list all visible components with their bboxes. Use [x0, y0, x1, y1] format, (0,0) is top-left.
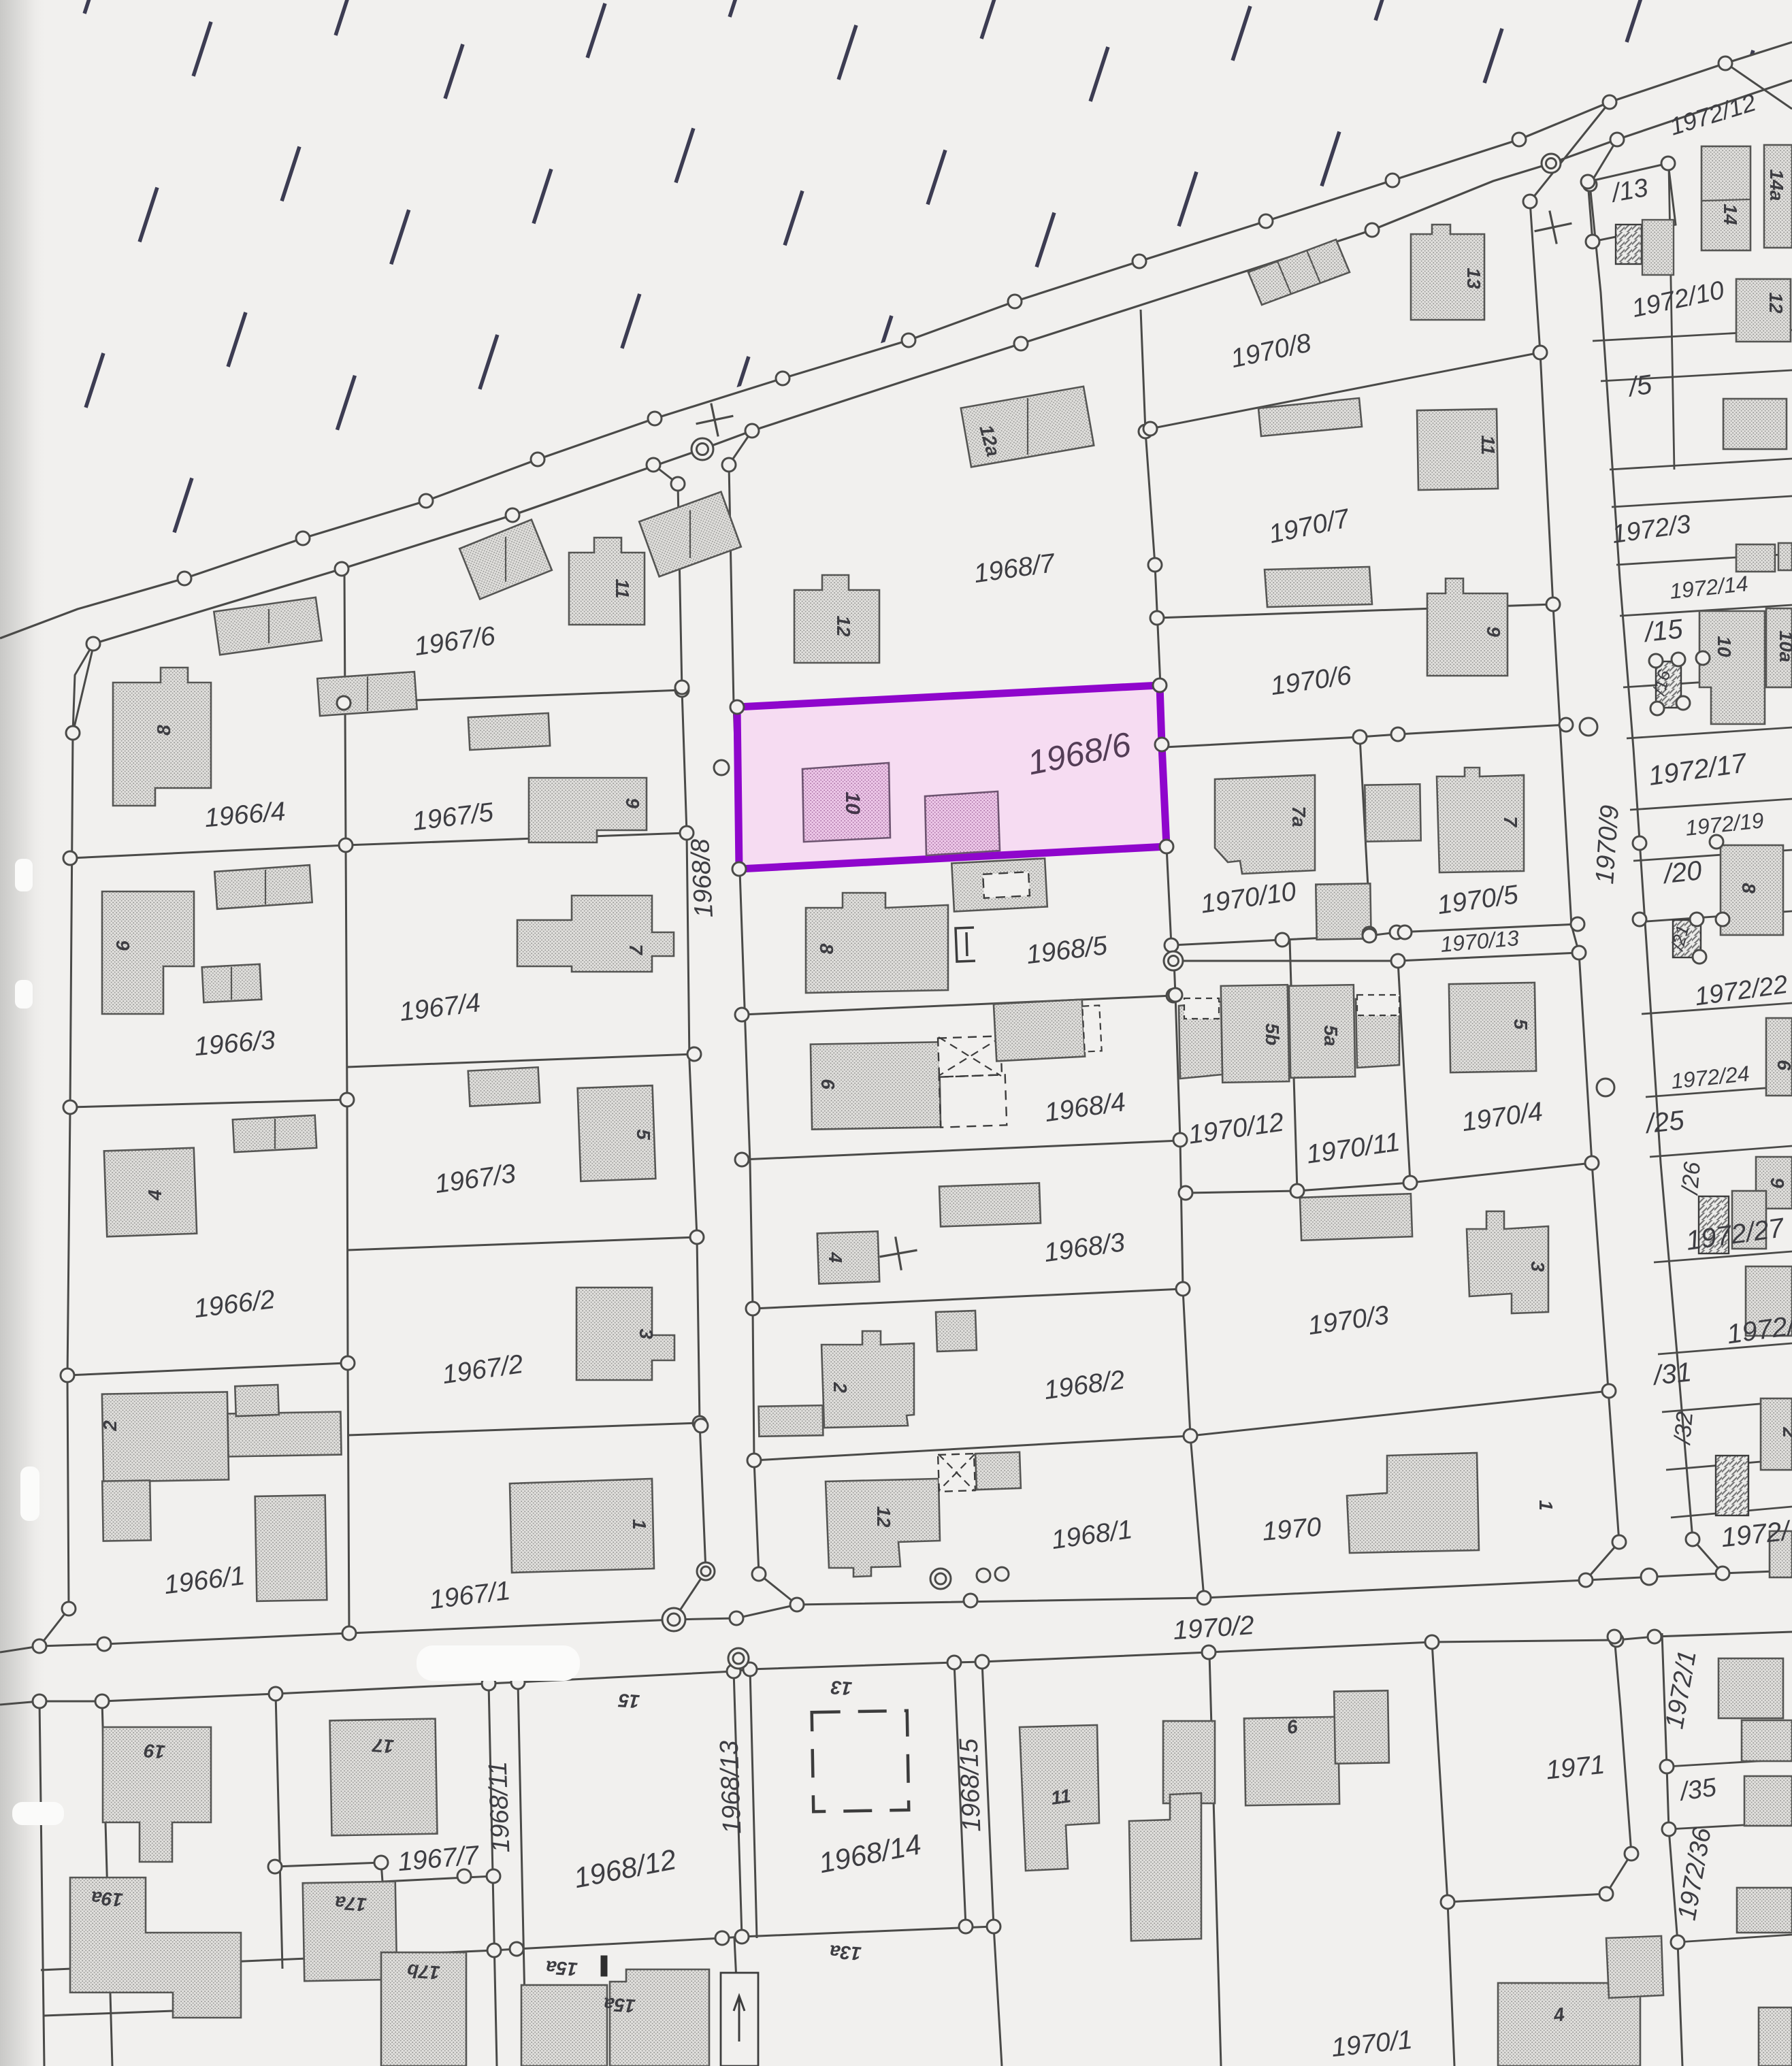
svg-text:/25: /25 — [1643, 1105, 1687, 1139]
svg-text:8: 8 — [1738, 883, 1759, 893]
svg-text:6: 6 — [112, 940, 133, 951]
svg-text:17b: 17b — [406, 1960, 440, 1983]
svg-text:8: 8 — [153, 725, 174, 736]
svg-text:19: 19 — [143, 1740, 166, 1762]
svg-text:1: 1 — [1535, 1500, 1557, 1511]
svg-text:10a: 10a — [1776, 631, 1792, 663]
svg-text:1968/11: 1968/11 — [484, 1760, 516, 1853]
svg-text:3: 3 — [636, 1328, 657, 1339]
svg-text:1970/2: 1970/2 — [1172, 1611, 1255, 1645]
svg-text:14: 14 — [1720, 203, 1741, 225]
svg-text:1971: 1971 — [1544, 1750, 1606, 1786]
svg-text:10: 10 — [1714, 636, 1735, 657]
svg-text:19a: 19a — [91, 1887, 124, 1910]
svg-text:2: 2 — [99, 1420, 120, 1432]
svg-text:15a: 15a — [603, 1993, 636, 2016]
svg-text:4: 4 — [825, 1251, 846, 1263]
svg-text:/35: /35 — [1676, 1773, 1718, 1807]
svg-text:11: 11 — [1478, 435, 1499, 455]
svg-text:9: 9 — [622, 798, 643, 808]
svg-text:1970/9: 1970/9 — [1591, 804, 1625, 885]
svg-text:10: 10 — [841, 791, 864, 815]
svg-text:12: 12 — [833, 615, 854, 637]
svg-text:11: 11 — [612, 578, 633, 598]
svg-text:1: 1 — [629, 1519, 650, 1530]
svg-text:17a: 17a — [334, 1892, 368, 1915]
svg-text:2: 2 — [1779, 1426, 1792, 1438]
svg-text:6: 6 — [817, 1079, 838, 1089]
svg-text:7: 7 — [1500, 816, 1521, 827]
svg-text:2: 2 — [830, 1381, 851, 1393]
svg-text:7a: 7a — [1288, 806, 1309, 827]
svg-text:9: 9 — [1767, 1177, 1788, 1188]
svg-text:7: 7 — [625, 944, 647, 955]
svg-text:5a: 5a — [1320, 1025, 1341, 1046]
svg-text:13a: 13a — [829, 1941, 862, 1964]
svg-text:/26: /26 — [1677, 1161, 1706, 1196]
svg-text:14a: 14a — [1766, 169, 1787, 201]
svg-text:5: 5 — [1510, 1019, 1531, 1030]
svg-text:1968/13: 1968/13 — [715, 1740, 747, 1835]
svg-text:13: 13 — [1463, 267, 1484, 289]
svg-text:17: 17 — [371, 1735, 395, 1757]
svg-text:11: 11 — [1049, 1785, 1072, 1809]
svg-text:3: 3 — [1527, 1261, 1548, 1272]
svg-text:4: 4 — [144, 1190, 165, 1201]
svg-text:12: 12 — [873, 1506, 894, 1528]
svg-text:/20: /20 — [1661, 855, 1704, 889]
svg-text:/31: /31 — [1650, 1357, 1693, 1391]
svg-text:15: 15 — [617, 1690, 640, 1712]
svg-text:8: 8 — [816, 943, 837, 954]
svg-text:5b: 5b — [1262, 1023, 1283, 1046]
svg-text:12: 12 — [1765, 292, 1787, 314]
svg-text:/15: /15 — [1642, 614, 1685, 648]
svg-text:1970: 1970 — [1261, 1512, 1322, 1546]
svg-text:5: 5 — [633, 1129, 654, 1140]
svg-text:1968/15: 1968/15 — [955, 1737, 987, 1833]
svg-text:6: 6 — [1774, 1060, 1792, 1070]
svg-text:/32: /32 — [1669, 1411, 1698, 1446]
svg-text:13: 13 — [830, 1677, 853, 1699]
svg-text:1968/8: 1968/8 — [686, 838, 719, 918]
svg-text:15a: 15a — [545, 1956, 579, 1980]
svg-text:9: 9 — [1483, 626, 1504, 637]
